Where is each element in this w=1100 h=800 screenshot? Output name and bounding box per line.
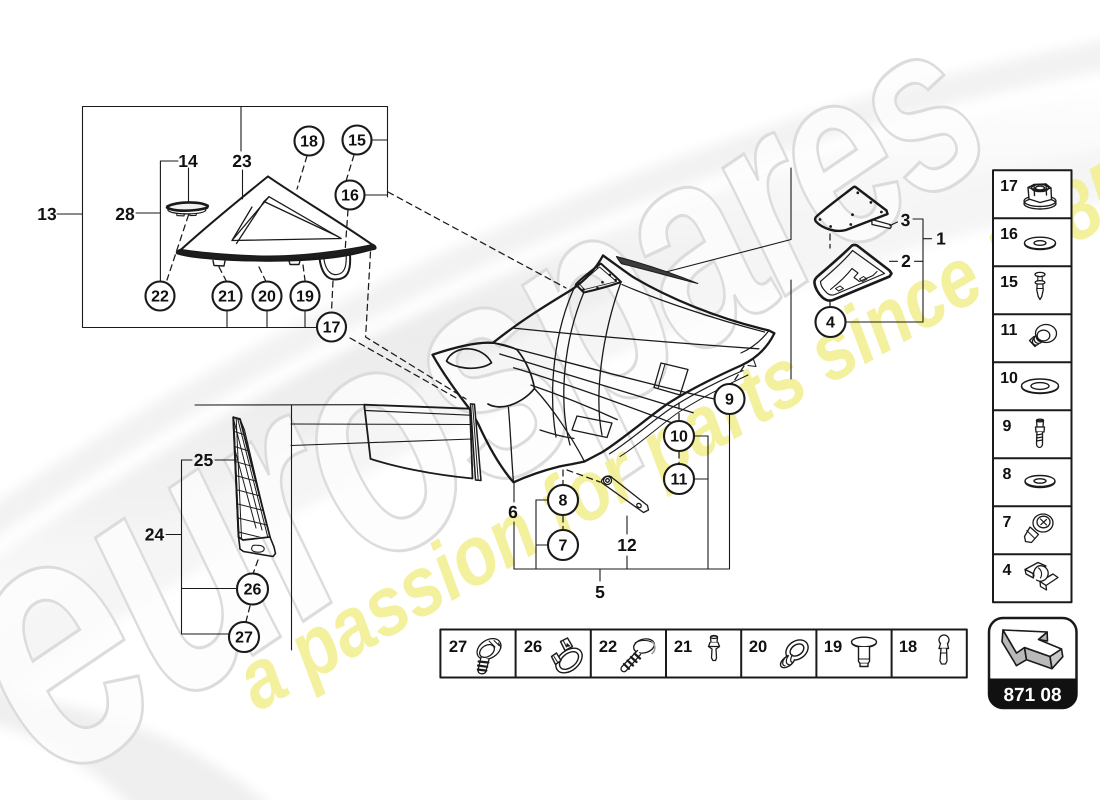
- svg-text:7: 7: [1003, 514, 1012, 531]
- svg-text:20: 20: [258, 289, 276, 306]
- svg-text:9: 9: [725, 392, 734, 409]
- svg-text:23: 23: [232, 151, 252, 171]
- svg-text:11: 11: [1001, 322, 1018, 339]
- svg-text:12: 12: [617, 535, 637, 555]
- svg-text:21: 21: [218, 289, 236, 306]
- svg-text:2: 2: [901, 251, 911, 271]
- svg-text:5: 5: [595, 582, 605, 602]
- svg-text:26: 26: [524, 638, 542, 656]
- svg-text:9: 9: [1003, 418, 1012, 435]
- svg-text:14: 14: [178, 151, 198, 171]
- svg-text:4: 4: [1003, 562, 1012, 579]
- svg-text:19: 19: [296, 289, 314, 306]
- svg-text:3: 3: [901, 210, 911, 230]
- svg-text:8: 8: [559, 493, 568, 510]
- svg-text:25: 25: [194, 450, 214, 470]
- svg-text:871 08: 871 08: [1003, 685, 1061, 706]
- svg-text:1: 1: [936, 229, 946, 249]
- svg-text:13: 13: [37, 204, 57, 224]
- svg-text:4: 4: [826, 315, 835, 332]
- svg-text:17: 17: [323, 320, 341, 337]
- svg-text:7: 7: [559, 538, 568, 555]
- svg-text:10: 10: [1000, 370, 1018, 387]
- svg-text:27: 27: [449, 638, 467, 656]
- svg-text:22: 22: [151, 289, 169, 306]
- svg-text:6: 6: [508, 502, 518, 522]
- svg-text:15: 15: [1000, 274, 1018, 291]
- svg-text:15: 15: [348, 133, 366, 150]
- svg-text:24: 24: [145, 525, 165, 545]
- svg-text:18: 18: [899, 638, 917, 656]
- svg-text:27: 27: [235, 630, 253, 647]
- svg-text:26: 26: [244, 582, 262, 599]
- svg-text:11: 11: [671, 472, 688, 489]
- svg-text:8: 8: [1003, 466, 1012, 483]
- svg-text:16: 16: [341, 188, 359, 205]
- svg-text:16: 16: [1000, 226, 1018, 243]
- svg-text:28: 28: [115, 204, 135, 224]
- svg-text:21: 21: [674, 638, 692, 656]
- svg-text:18: 18: [300, 134, 318, 151]
- svg-text:17: 17: [1000, 178, 1018, 195]
- svg-text:10: 10: [670, 429, 688, 446]
- svg-text:22: 22: [599, 638, 617, 656]
- svg-text:19: 19: [824, 638, 842, 656]
- svg-text:20: 20: [749, 638, 767, 656]
